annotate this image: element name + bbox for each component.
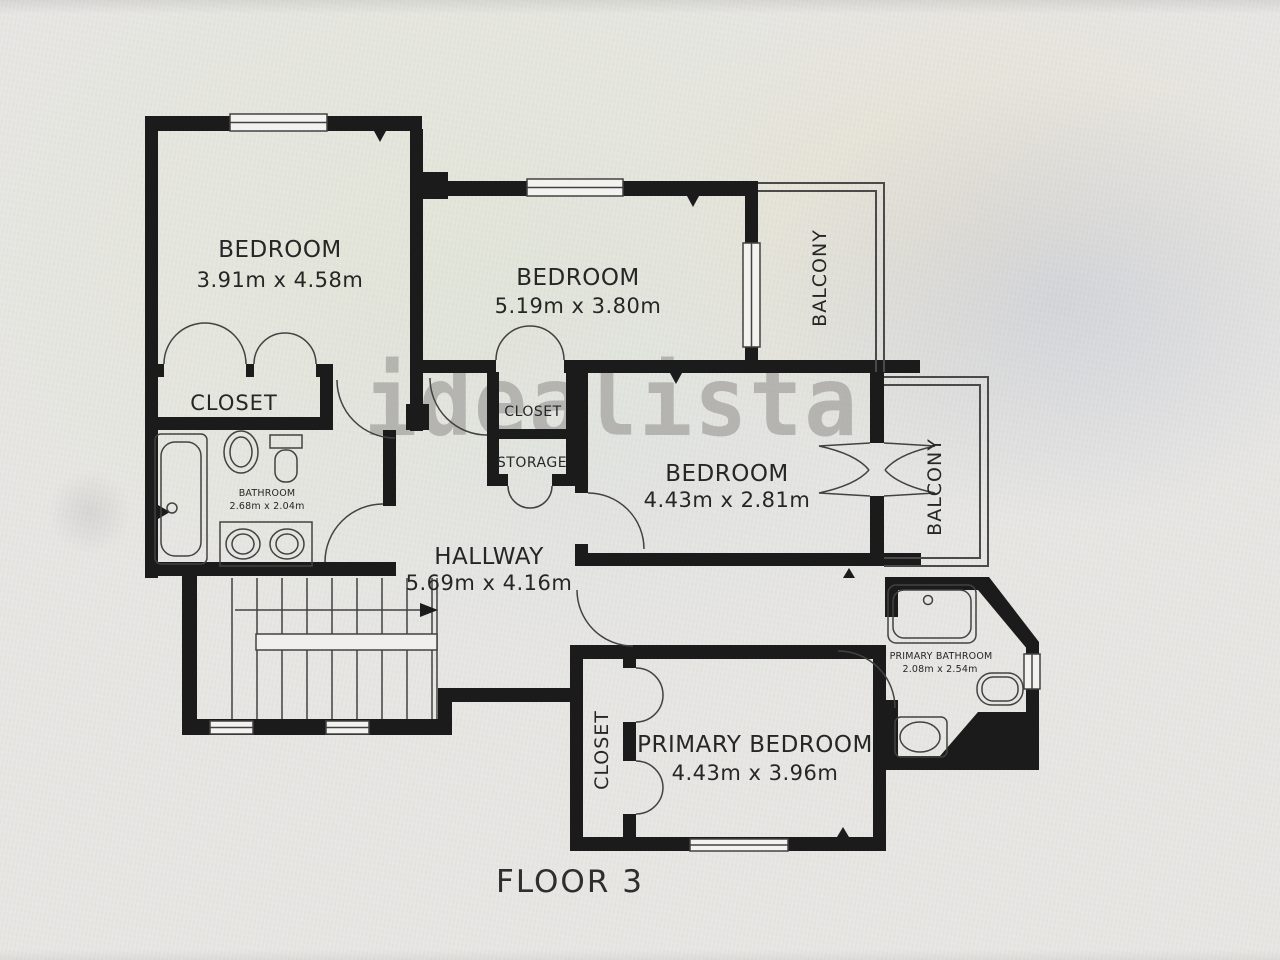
bathroom-label: BATHROOM <box>239 488 296 499</box>
hallway-label: HALLWAY <box>434 544 544 570</box>
window-bedroom-top-left <box>230 114 327 131</box>
window-stairs-left <box>210 721 253 734</box>
bedroom-top-middle-label: BEDROOM <box>516 265 640 291</box>
toilet <box>224 431 258 473</box>
window-bedroom-top-middle <box>527 179 623 196</box>
door-primary-bathroom <box>838 651 895 708</box>
hallway-dims: 5.69m x 4.16m <box>406 571 573 595</box>
double-sink-vanity <box>220 522 312 566</box>
door-bedroom-top-left <box>337 380 395 438</box>
door-hallway-corridor <box>430 378 487 435</box>
bifold-closet-center <box>496 326 564 360</box>
bifold-closet-tl <box>164 323 316 364</box>
storage-label: STORAGE <box>497 455 567 471</box>
primary-bathroom-dims: 2.08m x 2.54m <box>902 664 977 675</box>
window-stairs-right <box>326 721 369 734</box>
bathroom-dims: 2.68m x 2.04m <box>229 501 304 512</box>
bedroom-top-left-label: BEDROOM <box>218 237 342 263</box>
bedroom-middle-right-label: BEDROOM <box>665 461 789 487</box>
window-primary-bathroom <box>1024 654 1040 689</box>
bedroom-top-middle-dims: 5.19m x 3.80m <box>495 294 662 318</box>
balcony-right-label: BALCONY <box>924 438 946 536</box>
balcony-top-label: BALCONY <box>809 229 831 327</box>
closet-top-left-label: CLOSET <box>190 391 278 415</box>
stairs-up-arrow <box>420 603 438 617</box>
bedroom-middle-right-dims: 4.43m x 2.81m <box>644 488 811 512</box>
closet-primary-label: CLOSET <box>591 710 613 790</box>
window-primary-bedroom <box>690 839 788 851</box>
door-bedroom-middle-right <box>588 493 644 549</box>
primary-bathroom-label: PRIMARY BATHROOM <box>890 651 993 662</box>
primary-sink <box>977 673 1023 705</box>
primary-bathtub <box>888 585 976 643</box>
primary-bedroom-label: PRIMARY BEDROOM <box>637 732 873 758</box>
bifold-storage <box>508 486 552 508</box>
floor-plan-svg: BEDROOM 3.91m x 4.58m BEDROOM 5.19m x 3.… <box>0 0 1280 960</box>
floor-title: FLOOR 3 <box>496 864 644 900</box>
door-bathroom <box>325 504 383 562</box>
bidet <box>270 435 302 482</box>
bedroom-top-left-dims: 3.91m x 4.58m <box>197 268 364 292</box>
window-bedroom-to-balcony <box>743 243 760 347</box>
bathtub <box>155 434 207 564</box>
closet-center-label: CLOSET <box>504 404 561 420</box>
french-door-balcony <box>819 443 935 496</box>
staircase <box>232 578 438 719</box>
door-primary-suite <box>577 590 633 646</box>
screenshot-stage: idealista <box>0 0 1280 960</box>
primary-bedroom-dims: 4.43m x 3.96m <box>672 761 839 785</box>
primary-toilet <box>895 717 947 757</box>
